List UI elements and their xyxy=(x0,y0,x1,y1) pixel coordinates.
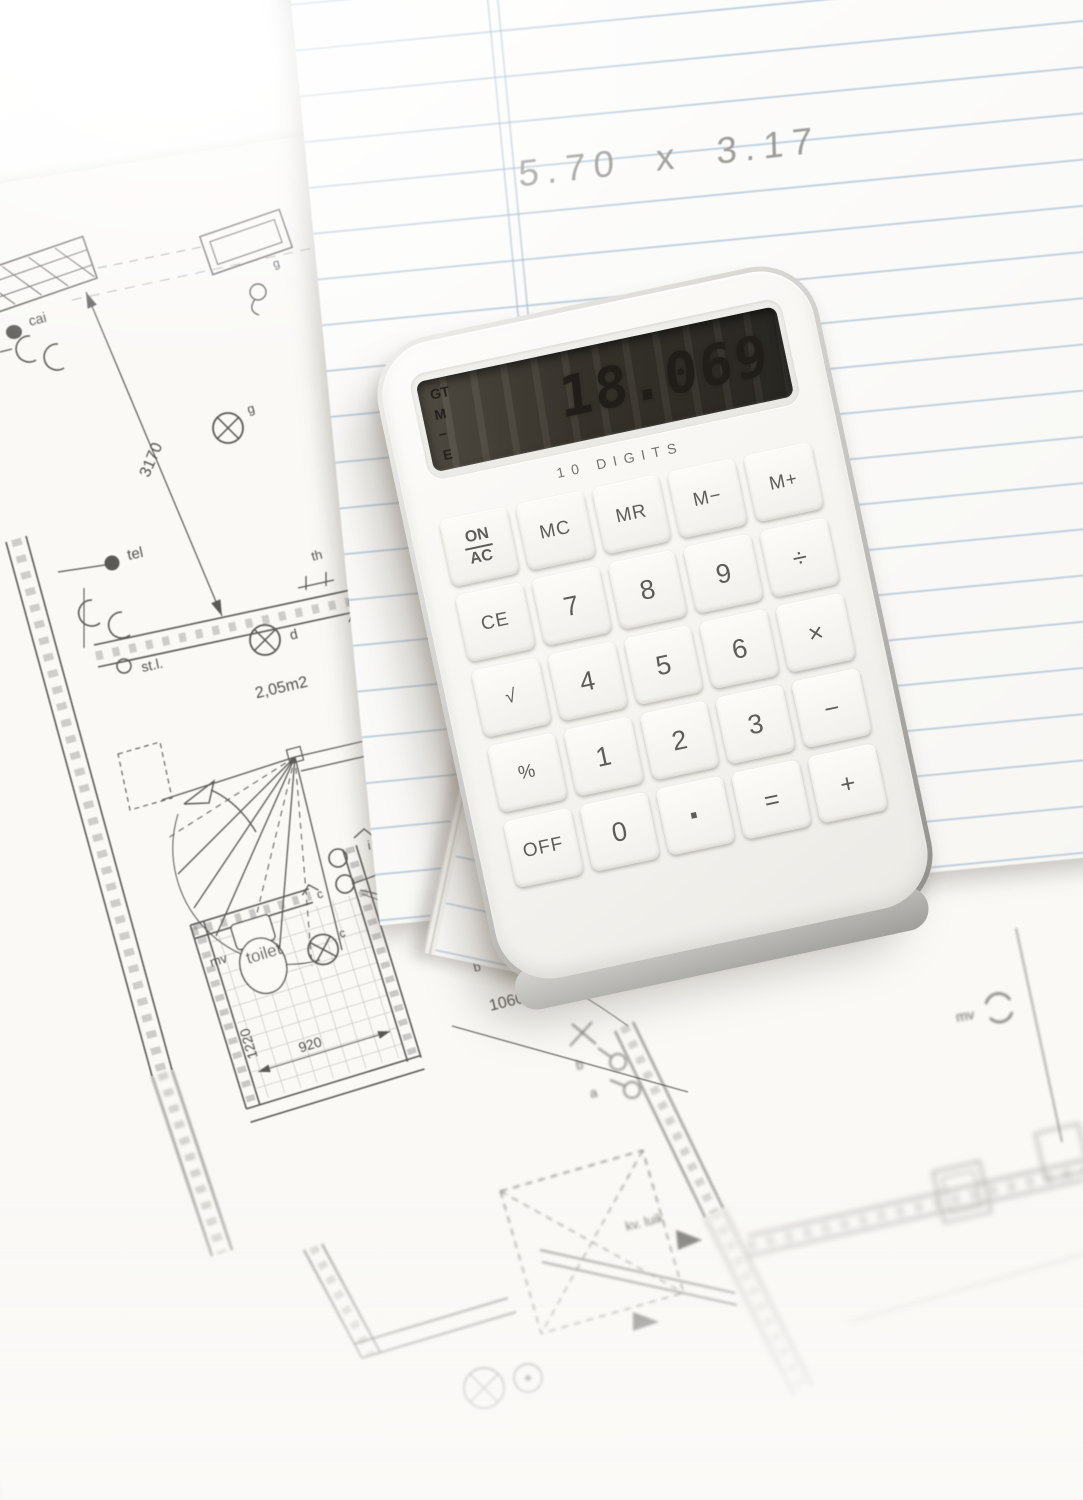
key-3[interactable]: 3 xyxy=(715,684,796,765)
key-m-[interactable]: M− xyxy=(667,458,748,539)
key-plus[interactable]: + xyxy=(807,743,888,824)
key-on-ac[interactable]: ONAC xyxy=(439,506,520,587)
mv-right-symbol: mv xyxy=(954,994,1012,1025)
handwritten-calculation: 5.70 x 3.17 xyxy=(518,119,821,195)
wall-left xyxy=(6,536,172,1076)
key-percent[interactable]: % xyxy=(487,732,568,813)
window-symbol-topleft xyxy=(0,236,97,319)
calculator-display: GT M − E 18.069 xyxy=(415,306,794,473)
photo-scene: g 3170 cai tel xyxy=(0,0,1083,1500)
key-6[interactable]: 6 xyxy=(699,609,780,690)
key-4[interactable]: 4 xyxy=(547,641,628,722)
blueprint-label-stl: st.l. xyxy=(140,655,165,675)
blueprint-label-area: 2,05m2 xyxy=(254,674,310,703)
key-mc[interactable]: MC xyxy=(515,490,596,571)
key-0[interactable]: 0 xyxy=(579,792,660,873)
blueprint-label-kv-luik: kv. luik xyxy=(624,1210,666,1234)
calculator-keypad: ONACMCMRM−M+CE789÷√456×%123−OFF0·=+ xyxy=(439,442,889,889)
cai-socket-symbol: cai xyxy=(0,309,64,370)
radiator-symbol-top: g xyxy=(200,209,292,315)
key-mr[interactable]: MR xyxy=(591,474,672,555)
key-minus[interactable]: − xyxy=(791,668,872,749)
th-symbol: th xyxy=(298,547,334,590)
walls-bottom-left xyxy=(304,1244,737,1408)
indicator-e: E xyxy=(442,440,484,462)
tel-point: tel xyxy=(58,544,145,648)
key-m-[interactable]: M+ xyxy=(743,442,824,523)
key-square-root[interactable]: √ xyxy=(471,657,552,738)
key-ce[interactable]: CE xyxy=(455,582,536,663)
lamp-g: g xyxy=(213,400,256,443)
blueprint-label-d: d xyxy=(288,625,299,642)
key-8[interactable]: 8 xyxy=(607,549,688,630)
key-multiply[interactable]: × xyxy=(775,592,856,673)
blueprint-label-g: g xyxy=(245,400,256,416)
indicator-minus: − xyxy=(437,420,479,442)
key-9[interactable]: 9 xyxy=(683,533,764,614)
key-ac-label: AC xyxy=(468,545,494,568)
key-off[interactable]: OFF xyxy=(503,808,584,889)
wall-right xyxy=(615,1022,723,1217)
key-decimal-point[interactable]: · xyxy=(655,775,736,856)
lamp-d: d xyxy=(250,625,299,655)
key-1[interactable]: 1 xyxy=(563,716,644,797)
key-5[interactable]: 5 xyxy=(623,625,704,706)
indicator-gt: GT xyxy=(429,380,471,402)
key-7[interactable]: 7 xyxy=(531,566,612,647)
blueprint-label-cai: cai xyxy=(27,309,48,329)
key-divide[interactable]: ÷ xyxy=(759,517,840,598)
key-equals[interactable]: = xyxy=(731,759,812,840)
key-2[interactable]: 2 xyxy=(639,700,720,781)
blueprint-label-g2: g xyxy=(271,256,281,271)
blueprint-label-mv-right: mv xyxy=(954,1006,975,1025)
indicator-m: M xyxy=(433,400,475,422)
kv-luik-hatch: kv. luik xyxy=(500,1150,702,1333)
blueprint-label-tel: tel xyxy=(126,544,145,564)
blueprint-label-switch-a: a xyxy=(588,1085,599,1101)
blueprint-label-th: th xyxy=(310,547,324,564)
blueprint-label-switch-b: b xyxy=(574,1057,584,1073)
